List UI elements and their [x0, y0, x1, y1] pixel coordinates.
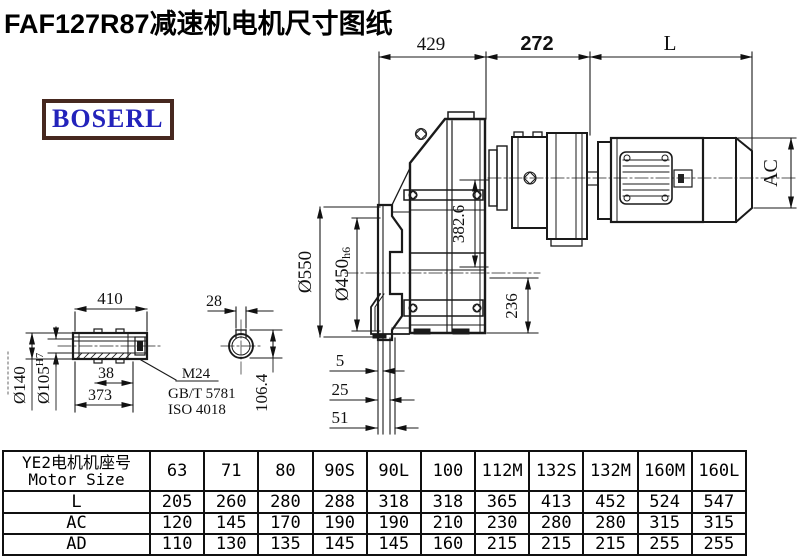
- dim-d105-main: Ø105: [34, 366, 53, 404]
- col-90S: 90S: [313, 451, 367, 491]
- cell: 215: [529, 534, 583, 555]
- table-header-row: YE2电机机座号 Motor Size 63 71 80 90S 90L 100…: [3, 451, 746, 491]
- row-label-AD: AD: [3, 534, 150, 555]
- bolt-icon: [409, 129, 481, 313]
- cell: 170: [258, 513, 312, 534]
- cell: 215: [583, 534, 637, 555]
- cell: 110: [150, 534, 204, 555]
- bore-dimensions: [208, 307, 282, 372]
- dim-272: 272: [520, 33, 553, 55]
- dim-d450h6: Ø450h6: [332, 247, 353, 301]
- cell: 255: [638, 534, 692, 555]
- dim-28: 28: [206, 293, 222, 310]
- cell: 135: [258, 534, 312, 555]
- motor-adapter: [489, 132, 598, 246]
- dim-236: 236: [502, 293, 521, 319]
- cell: 230: [475, 513, 529, 534]
- row-label-AC: AC: [3, 513, 150, 534]
- cell: 130: [204, 534, 258, 555]
- col-132M: 132M: [583, 451, 637, 491]
- row-label-L: L: [3, 491, 150, 512]
- cell: 145: [204, 513, 258, 534]
- table-row-AC: AC 120 145 170 190 190 210 230 280 280 3…: [3, 513, 746, 534]
- cell: 547: [692, 491, 746, 512]
- dim-51: 51: [332, 408, 349, 427]
- header-en: Motor Size: [4, 471, 149, 489]
- table-header-motor-size: YE2电机机座号 Motor Size: [3, 451, 150, 491]
- dim-d450-main: Ø450: [332, 259, 353, 301]
- dim-410: 410: [97, 289, 123, 308]
- dim-d105-fit: H7: [34, 352, 46, 366]
- col-71: 71: [204, 451, 258, 491]
- col-63: 63: [150, 451, 204, 491]
- cell: 318: [367, 491, 421, 512]
- table-row-L: L 205 260 280 288 318 318 365 413 452 52…: [3, 491, 746, 512]
- cell: 315: [638, 513, 692, 534]
- col-100: 100: [421, 451, 475, 491]
- cell: 365: [475, 491, 529, 512]
- label-m24: M24: [182, 366, 211, 382]
- dim-d140: Ø140: [10, 366, 29, 404]
- col-90L: 90L: [367, 451, 421, 491]
- cell: 145: [313, 534, 367, 555]
- cell: 120: [150, 513, 204, 534]
- dim-d105h7: Ø105H7: [34, 352, 53, 404]
- dim-373: 373: [88, 387, 112, 404]
- cell: 145: [367, 534, 421, 555]
- motor: [598, 138, 752, 222]
- dim-382-6: 382.6: [449, 205, 468, 243]
- cell: 318: [421, 491, 475, 512]
- cell: 255: [692, 534, 746, 555]
- dim-5: 5: [336, 351, 345, 370]
- dim-25: 25: [332, 380, 349, 399]
- col-112M: 112M: [475, 451, 529, 491]
- motor-size-table: YE2电机机座号 Motor Size 63 71 80 90S 90L 100…: [2, 450, 747, 556]
- cell: 260: [204, 491, 258, 512]
- cell: 315: [692, 513, 746, 534]
- col-160L: 160L: [692, 451, 746, 491]
- label-iso4018: ISO 4018: [168, 402, 226, 418]
- dimension-drawing-page: FAF127R87减速机电机尺寸图纸 BOSERL 429 272 L: [0, 0, 800, 557]
- cell: 280: [258, 491, 312, 512]
- label-gbt5781: GB/T 5781: [168, 386, 236, 402]
- cell: 452: [583, 491, 637, 512]
- cell: 190: [367, 513, 421, 534]
- centerlines: [8, 178, 795, 394]
- dim-d550: Ø550: [295, 251, 316, 293]
- dim-106-4: 106.4: [252, 373, 271, 412]
- cell: 280: [583, 513, 637, 534]
- cell: 210: [421, 513, 475, 534]
- dim-429: 429: [417, 34, 446, 55]
- top-dimensions: [379, 52, 752, 205]
- cell: 288: [313, 491, 367, 512]
- dim-d450-fit: h6: [339, 247, 353, 259]
- cell: 215: [475, 534, 529, 555]
- dim-L: L: [664, 31, 677, 55]
- dim-450-lines: [352, 218, 380, 331]
- cell: 524: [638, 491, 692, 512]
- cell: 160: [421, 534, 475, 555]
- gearbox-housing: [404, 112, 485, 334]
- dim-38: 38: [98, 365, 114, 382]
- col-80: 80: [258, 451, 312, 491]
- cell: 413: [529, 491, 583, 512]
- cell: 190: [313, 513, 367, 534]
- cell: 280: [529, 513, 583, 534]
- table-row-AD: AD 110 130 135 145 145 160 215 215 215 2…: [3, 534, 746, 555]
- col-160M: 160M: [638, 451, 692, 491]
- cell: 205: [150, 491, 204, 512]
- dim-AC: AC: [760, 159, 782, 187]
- header-cn: YE2电机机座号: [4, 454, 149, 472]
- col-132S: 132S: [529, 451, 583, 491]
